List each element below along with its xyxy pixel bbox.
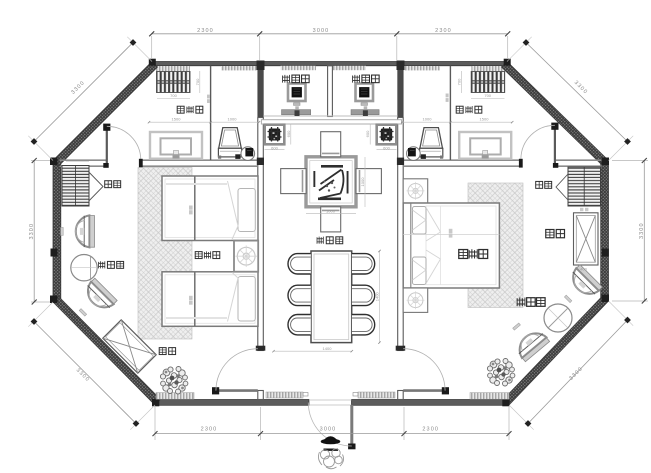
svg-text:3300: 3300 [639,222,645,239]
svg-text:1400: 1400 [375,292,380,302]
svg-text:600: 600 [286,130,291,137]
svg-text:1400: 1400 [323,346,333,351]
svg-text:1000: 1000 [326,209,336,214]
svg-text:600: 600 [271,145,278,150]
svg-text:600: 600 [365,130,370,137]
svg-text:700: 700 [195,78,200,85]
svg-text:700: 700 [170,93,177,98]
svg-text:2300: 2300 [435,28,452,34]
svg-text:2300: 2300 [201,426,218,432]
svg-text:1000: 1000 [228,117,238,122]
svg-text:3000: 3000 [320,426,337,432]
svg-text:2300: 2300 [422,426,439,432]
svg-text:3300: 3300 [29,223,35,240]
svg-text:1000: 1000 [423,117,433,122]
svg-text:2300: 2300 [197,28,214,34]
svg-text:3000: 3000 [313,28,330,34]
svg-text:1000: 1000 [360,177,365,187]
svg-text:400: 400 [580,267,587,272]
svg-text:1500: 1500 [480,117,490,122]
svg-text:700: 700 [484,93,491,98]
svg-text:600: 600 [383,145,390,150]
svg-text:1500: 1500 [172,117,182,122]
svg-text:700: 700 [456,78,461,85]
